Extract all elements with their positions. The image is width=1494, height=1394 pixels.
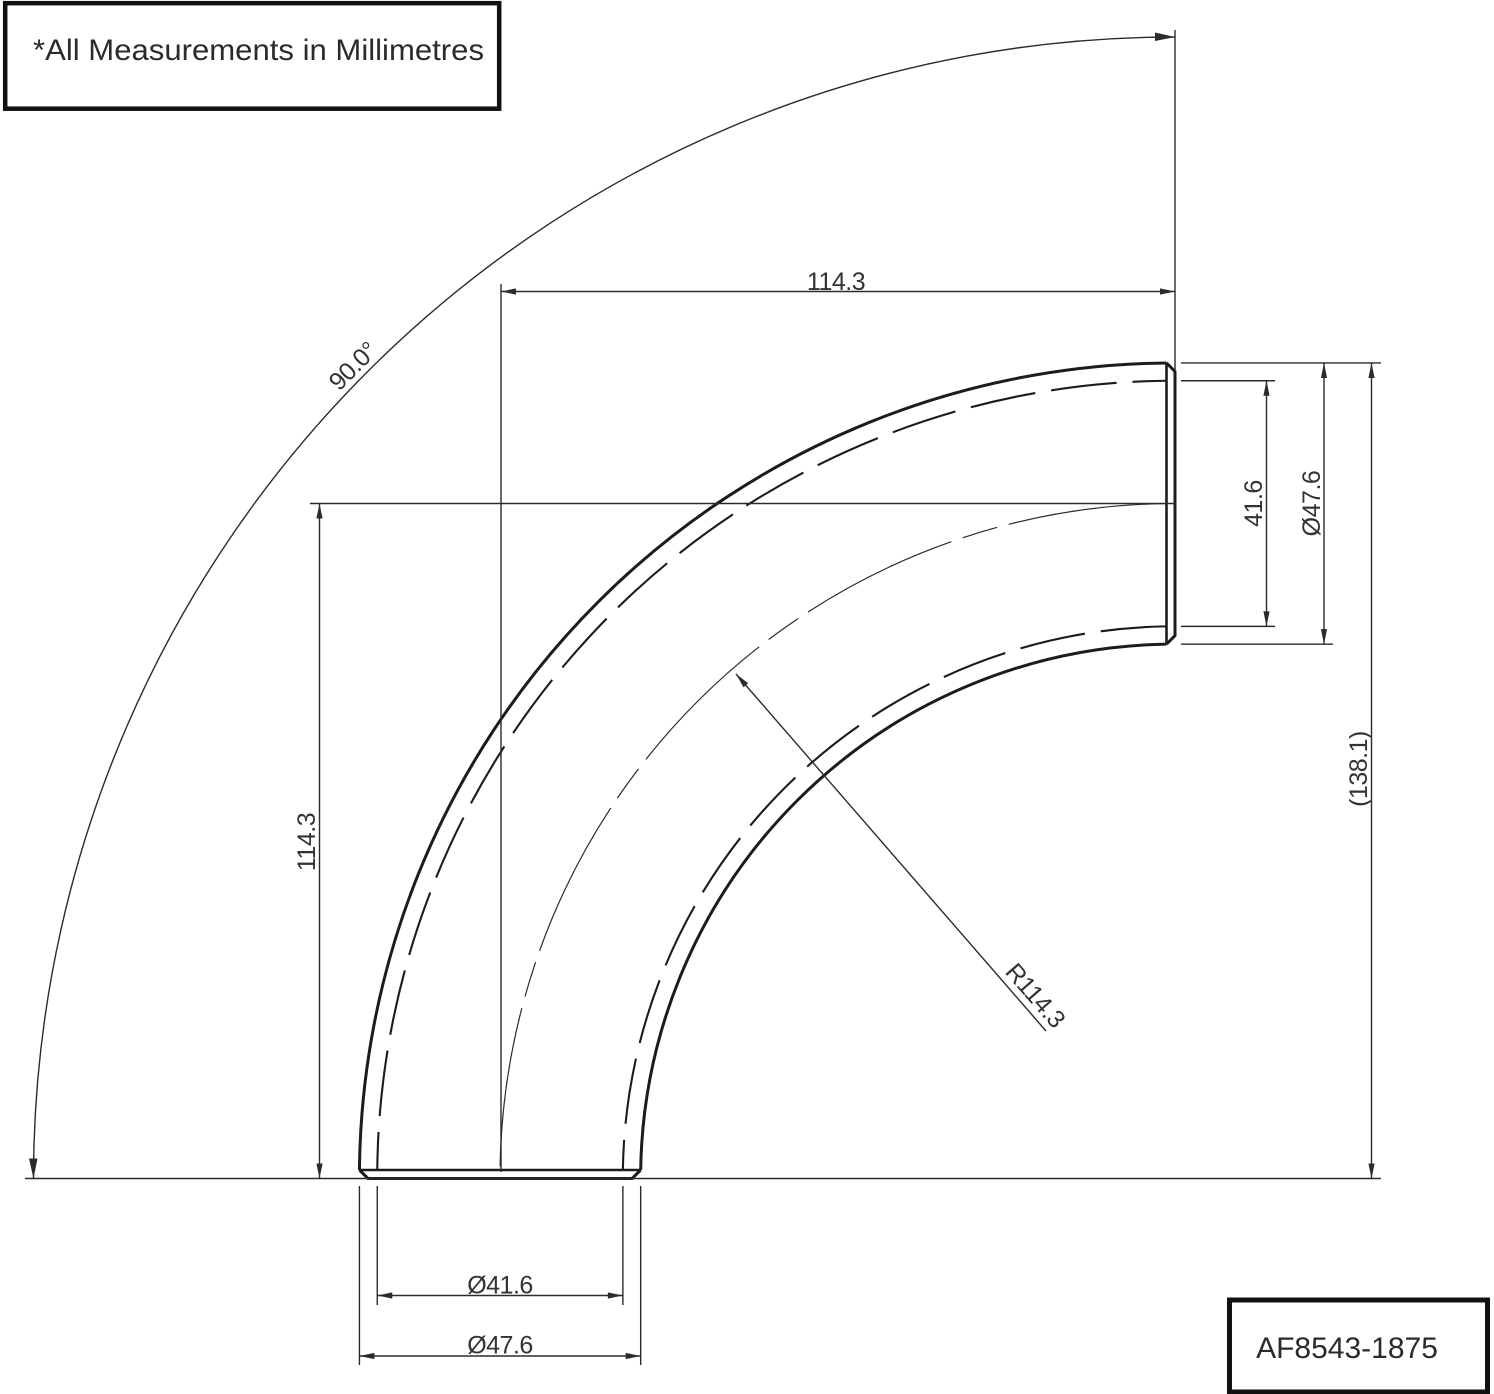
svg-text:*All Measurements in Millimetr: *All Measurements in Millimetres	[33, 34, 484, 67]
svg-text:AF8543-1875: AF8543-1875	[1256, 1332, 1438, 1365]
svg-text:Ø47.6: Ø47.6	[467, 1332, 533, 1360]
svg-text:114.3: 114.3	[293, 813, 321, 871]
svg-text:Ø47.6: Ø47.6	[1298, 471, 1326, 537]
svg-text:114.3: 114.3	[807, 268, 865, 296]
svg-text:41.6: 41.6	[1240, 480, 1268, 527]
svg-text:Ø41.6: Ø41.6	[467, 1272, 533, 1300]
svg-text:(138.1): (138.1)	[1345, 731, 1373, 807]
